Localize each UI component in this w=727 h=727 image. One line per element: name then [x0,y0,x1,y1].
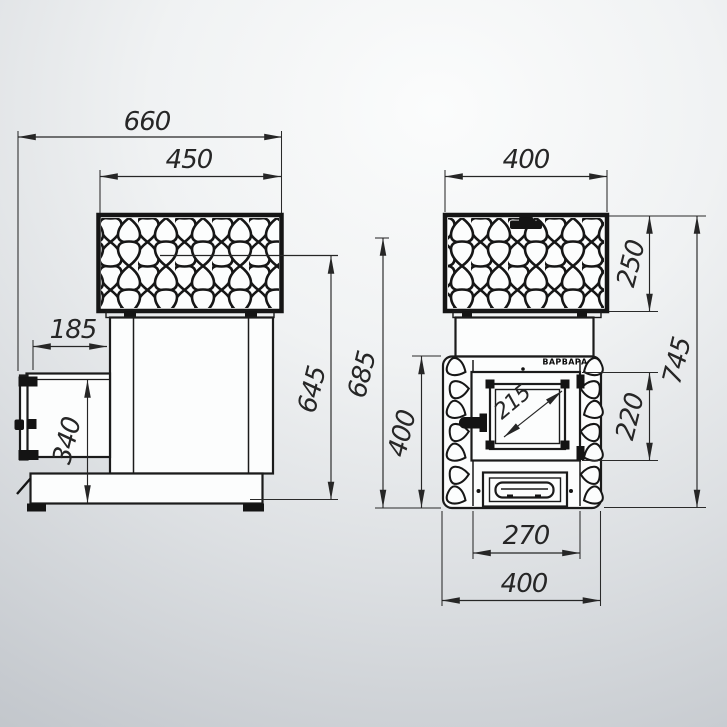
dim-front-overall-height: 745 [657,334,697,387]
side-view [15,215,339,512]
side-door-knob [15,420,25,431]
front-neck [456,318,594,357]
glass-clamp-top-left [486,380,495,389]
dim-front-upper-level-height: 685 [342,348,382,401]
dim-front-cage-height: 250 [611,237,651,290]
drawer-screw-left [477,489,481,493]
front-door-hinge-top [577,375,585,389]
dim-side-tunnel-protrusion: 185 [50,315,97,345]
side-ash-lever [17,479,31,495]
dim-side-upper-level-height: 645 [292,363,332,416]
dim-side-cage-depth: 450 [166,145,213,175]
glass-clamp-bottom-left [486,441,495,450]
side-base [31,474,263,504]
drawing-canvas: 660 450 185 340 645 ВАРВАРА [0,0,727,727]
ash-drawer-pull-foot-right [535,495,541,498]
side-stone-cage-mesh-pattern [101,218,279,308]
dim-front-body-width: 400 [501,569,548,599]
stove-technical-drawing: 660 450 185 340 645 ВАРВАРА [0,0,727,727]
side-door-hinge-bottom [19,450,39,460]
front-pin-dot [521,367,525,371]
brand-emblem-plate [510,221,542,230]
drawer-screw-right [569,489,573,493]
dim-front-firebox-zone-height: 400 [382,407,422,460]
dim-front-door-frame-width: 270 [503,521,550,551]
side-door-latch [28,419,37,429]
dim-side-overall-depth: 660 [124,107,171,137]
ash-drawer-pull [496,483,554,498]
dim-front-door-height: 220 [610,390,650,443]
ash-drawer-pull-foot-left [507,495,513,498]
brand-label: ВАРВАРА [542,358,588,367]
glass-clamp-bottom-right [561,441,570,450]
side-foot-rear [243,504,264,512]
side-door-hinge-top [19,377,38,387]
door-handle-mount [480,414,488,433]
glass-clamp-top-right [561,380,570,389]
side-door-plate [20,376,28,460]
front-stone-cage-mesh-pattern [448,218,604,308]
front-view: ВАРВАРА [443,215,607,508]
dim-front-cage-width: 400 [503,145,550,175]
front-door-hinge-bottom [577,446,585,460]
side-foot-front [27,504,46,512]
